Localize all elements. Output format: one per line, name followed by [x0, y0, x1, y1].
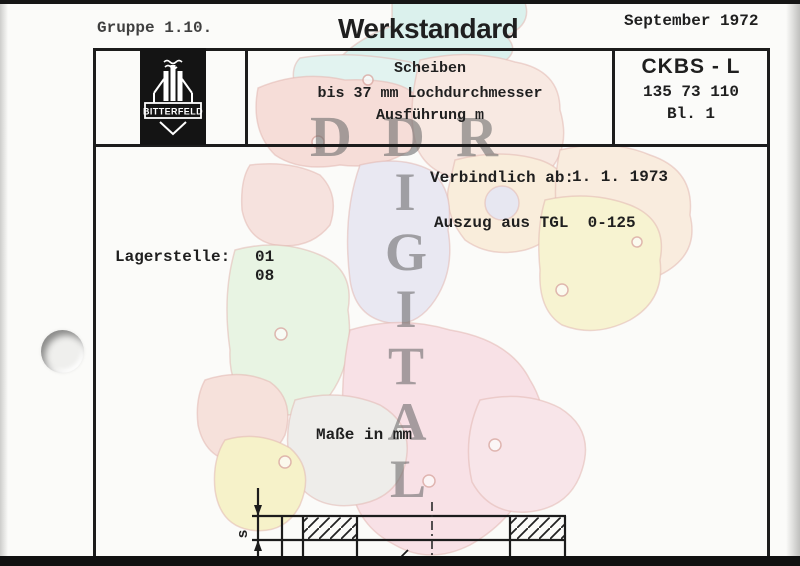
watermark-letter: L [390, 452, 426, 506]
table-border-left [93, 48, 96, 557]
watermark-letter: G [385, 225, 427, 279]
bitterfeld-logo: BITTERFELD [140, 48, 206, 145]
units-note: Maße in mm [316, 426, 412, 444]
valid-from-value: 1. 1. 1973 [572, 168, 668, 186]
valid-from-label: Verbindlich ab: [430, 169, 574, 187]
subject-line-3: Ausführung m [250, 107, 610, 124]
source-excerpt: Auszug aus TGL 0-125 [434, 214, 636, 232]
storage-value-1: 01 [255, 248, 274, 266]
logo-text: BITTERFELD [143, 107, 203, 117]
map-region-suhl [214, 436, 305, 530]
map-region-dresden [468, 396, 585, 512]
group-label: Gruppe 1.10. [97, 19, 212, 37]
scan-edge-left [0, 0, 8, 566]
subject-line-2: bis 37 mm Lochdurchmesser [250, 85, 610, 102]
watermark-letter: I [394, 165, 415, 219]
watermark-letter: T [388, 339, 424, 393]
issue-date: September 1972 [624, 12, 758, 30]
hole-punch [41, 330, 84, 373]
scanned-document: D D R I G I T A L Gruppe 1.10. Werkstand… [0, 0, 800, 566]
standard-number: 135 73 110 [615, 83, 767, 101]
document-type-title: Werkstandard [338, 13, 518, 45]
sheet-number: Bl. 1 [615, 105, 767, 123]
subject-line-1: Scheiben [250, 60, 610, 77]
map-region-west [242, 164, 334, 246]
scan-edge-top [0, 0, 800, 4]
watermark-letter: I [395, 282, 416, 336]
storage-value-2: 08 [255, 267, 274, 285]
logo-cell-divider [245, 48, 248, 147]
scan-edge-right [786, 0, 800, 566]
storage-label: Lagerstelle: [115, 248, 230, 266]
standard-code: CKBS - L [615, 55, 767, 79]
scan-edge-bottom [0, 556, 800, 566]
table-border-right [767, 48, 770, 557]
